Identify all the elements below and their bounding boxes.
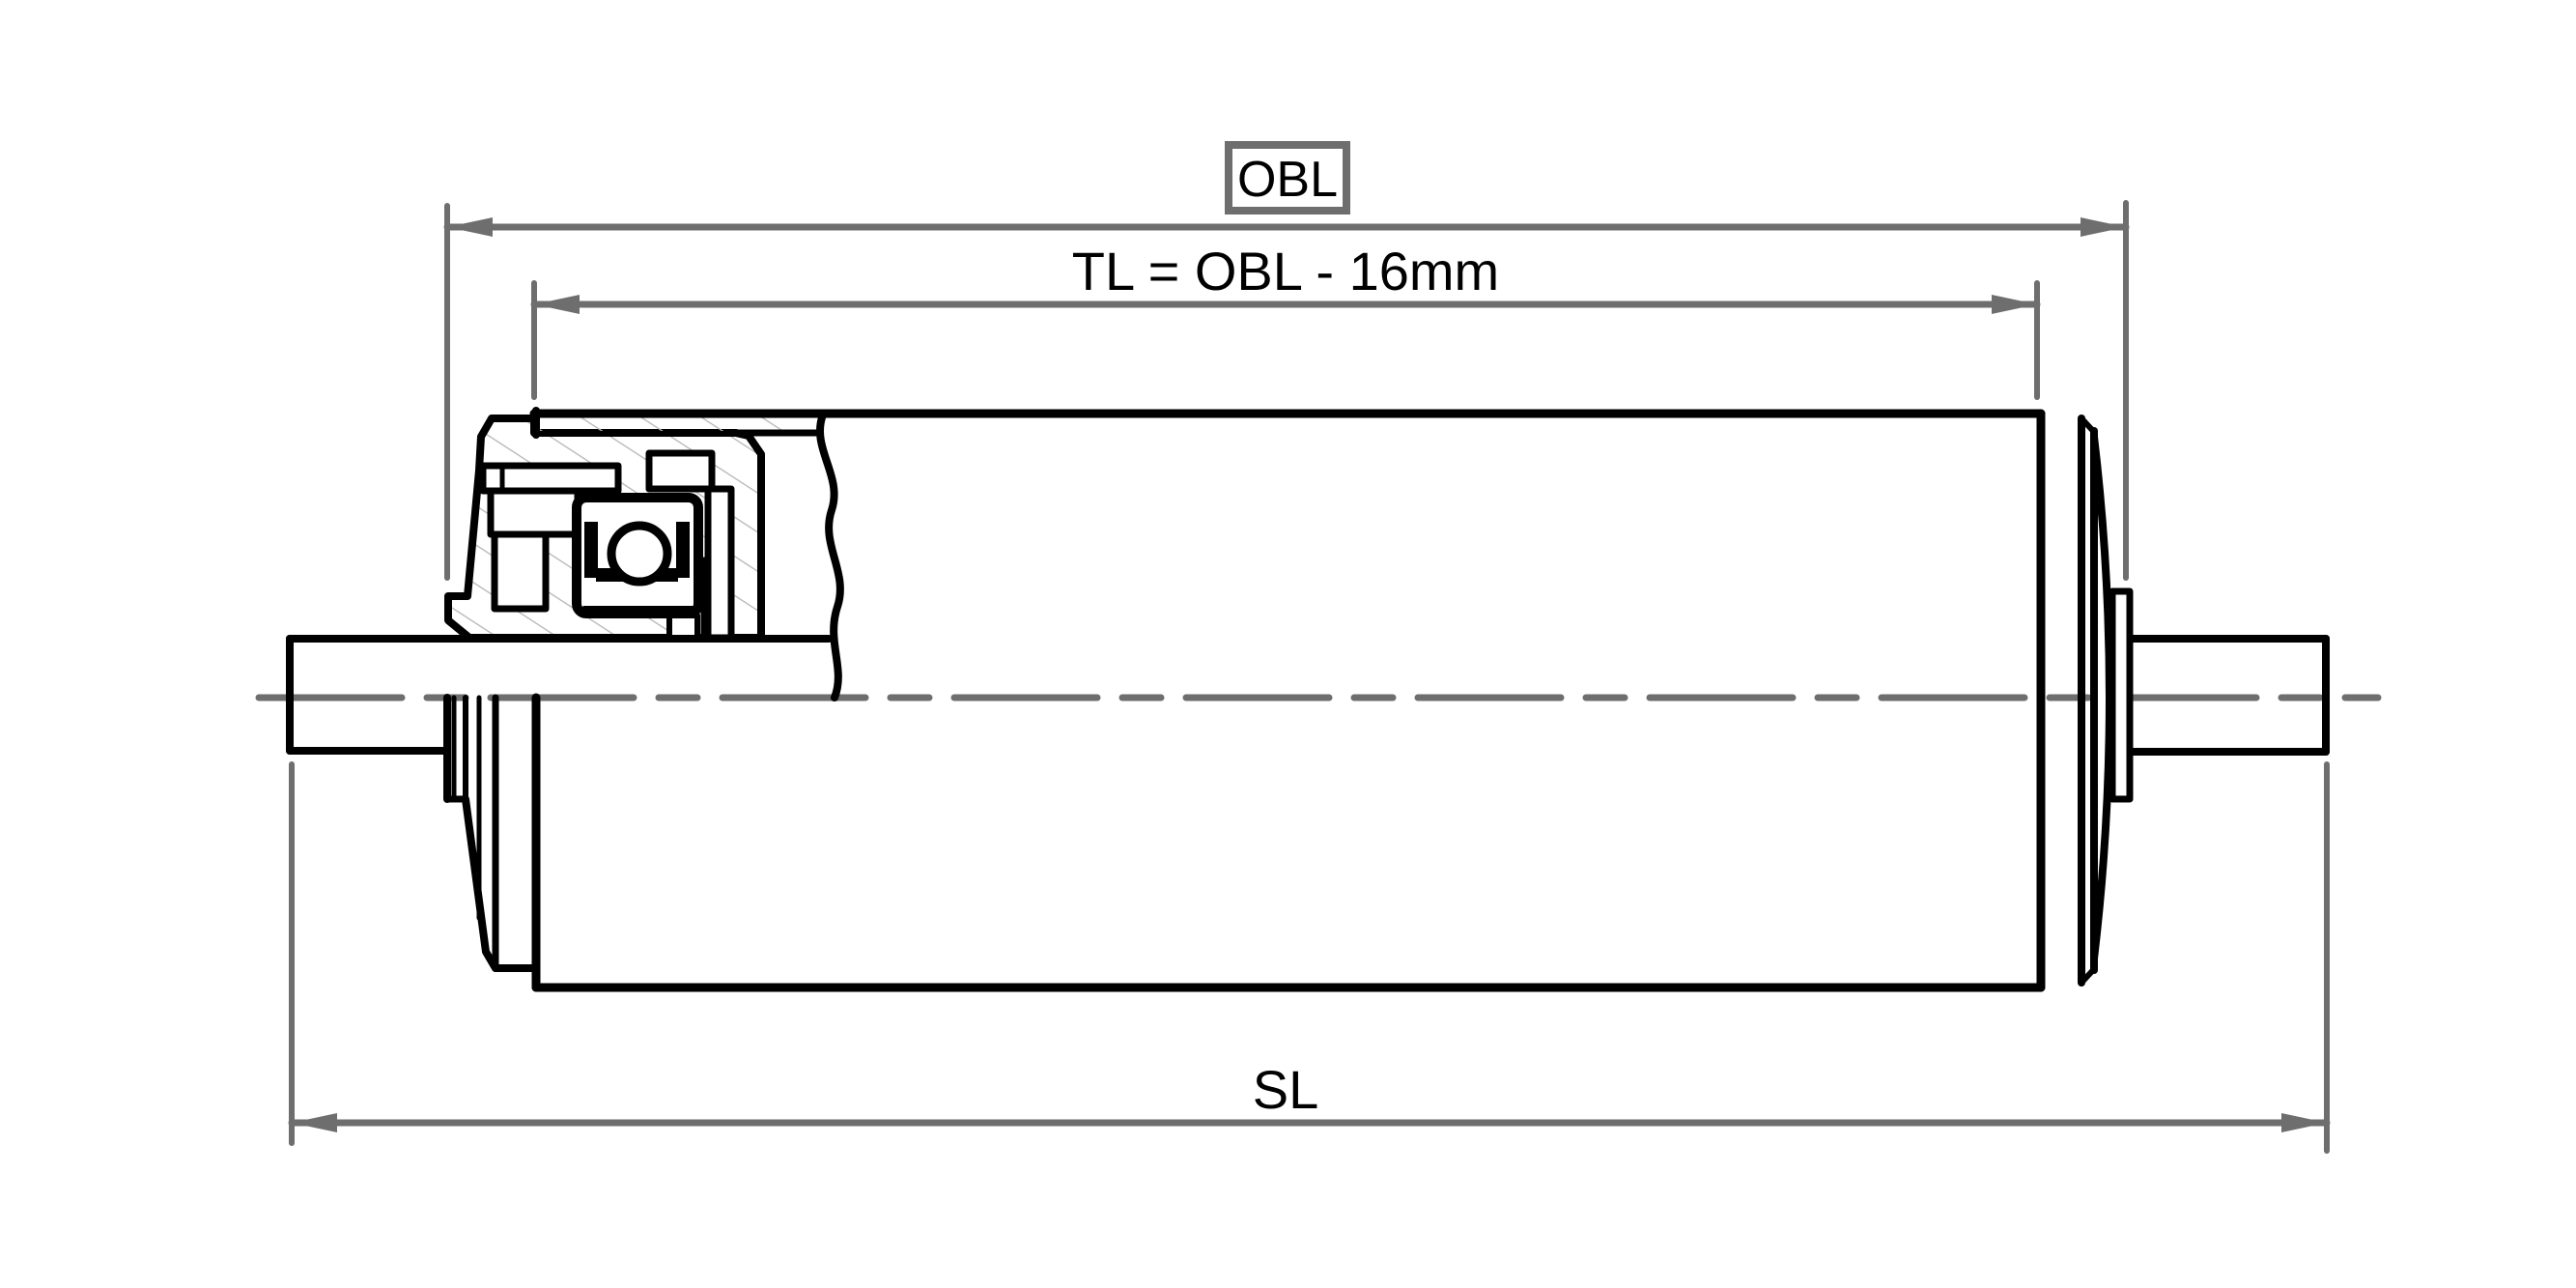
obl-arrow-left: [447, 217, 493, 237]
dimension-graphics: [259, 203, 2378, 1151]
tl-arrow-right: [1992, 295, 2037, 314]
sl-arrow-left: [292, 1113, 337, 1132]
bearing-ball: [611, 526, 667, 582]
bearing-shoulder-right: [676, 522, 690, 578]
end-cap-left: [447, 698, 536, 987]
tl-arrow-left: [534, 295, 580, 314]
shaft-collar-right: [2112, 591, 2130, 799]
bearing-shoulder-left: [584, 522, 598, 578]
break-line: [820, 415, 840, 698]
ball-bearing: [577, 498, 698, 614]
drawing-canvas: OBL TL = OBL - 16mm SL: [0, 0, 2576, 1288]
tube-wall-section: [538, 416, 819, 431]
roller-technical-drawing: OBL TL = OBL - 16mm SL: [0, 0, 2576, 1288]
tl-label: TL = OBL - 16mm: [1072, 241, 1499, 301]
obl-label: OBL: [1237, 152, 1338, 208]
sl-arrow-right: [2281, 1113, 2327, 1132]
obl-arrow-right: [2081, 217, 2126, 237]
annotations: OBL TL = OBL - 16mm SL: [1072, 145, 1499, 1120]
sl-label: SL: [1253, 1059, 1319, 1120]
